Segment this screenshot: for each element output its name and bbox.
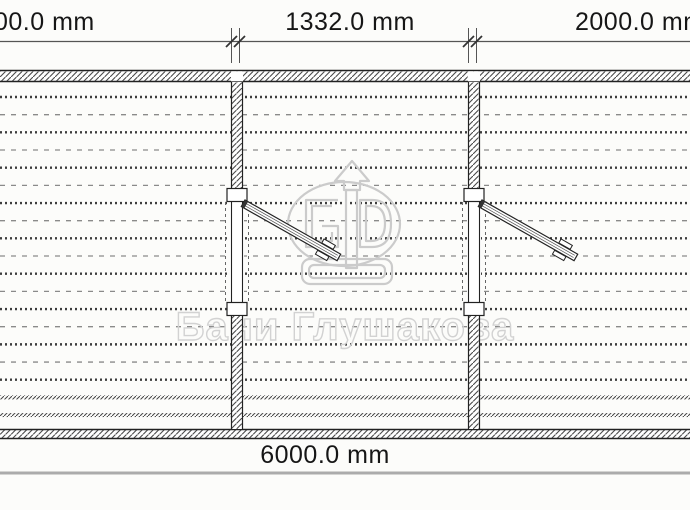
logo-letter-d-inner bbox=[366, 206, 385, 241]
dimension-label-top-left: 00.0 mm bbox=[0, 8, 95, 37]
door-jamb-top bbox=[464, 189, 484, 202]
bottom-dimension-rule bbox=[0, 472, 690, 475]
dimension-label-bottom: 6000.0 mm bbox=[259, 441, 391, 470]
floor-plan-drawing: Бани Глушакова bbox=[0, 0, 690, 510]
logo-ellipse bbox=[288, 182, 400, 266]
logo-letter-g-inner bbox=[312, 206, 332, 241]
door-jamb-bottom bbox=[464, 303, 484, 316]
wall-joint-notch bbox=[231, 71, 243, 81]
bottom-exterior-wall bbox=[0, 429, 690, 439]
door-jamb-bottom bbox=[227, 303, 247, 316]
dimension-label-top-middle: 1332.0 mm bbox=[285, 8, 415, 37]
wall-joint-notch bbox=[468, 71, 480, 81]
door-jamb-top bbox=[227, 189, 247, 202]
cad-drawing-viewport: Бани Глушакова bbox=[0, 0, 690, 510]
board-line bbox=[0, 413, 690, 417]
door-leaf-right bbox=[476, 196, 580, 265]
top-exterior-wall bbox=[0, 70, 690, 82]
board-line bbox=[0, 395, 690, 399]
dimension-label-top-right: 2000.0 mm bbox=[575, 8, 690, 37]
brand-logo-watermark bbox=[288, 161, 400, 284]
